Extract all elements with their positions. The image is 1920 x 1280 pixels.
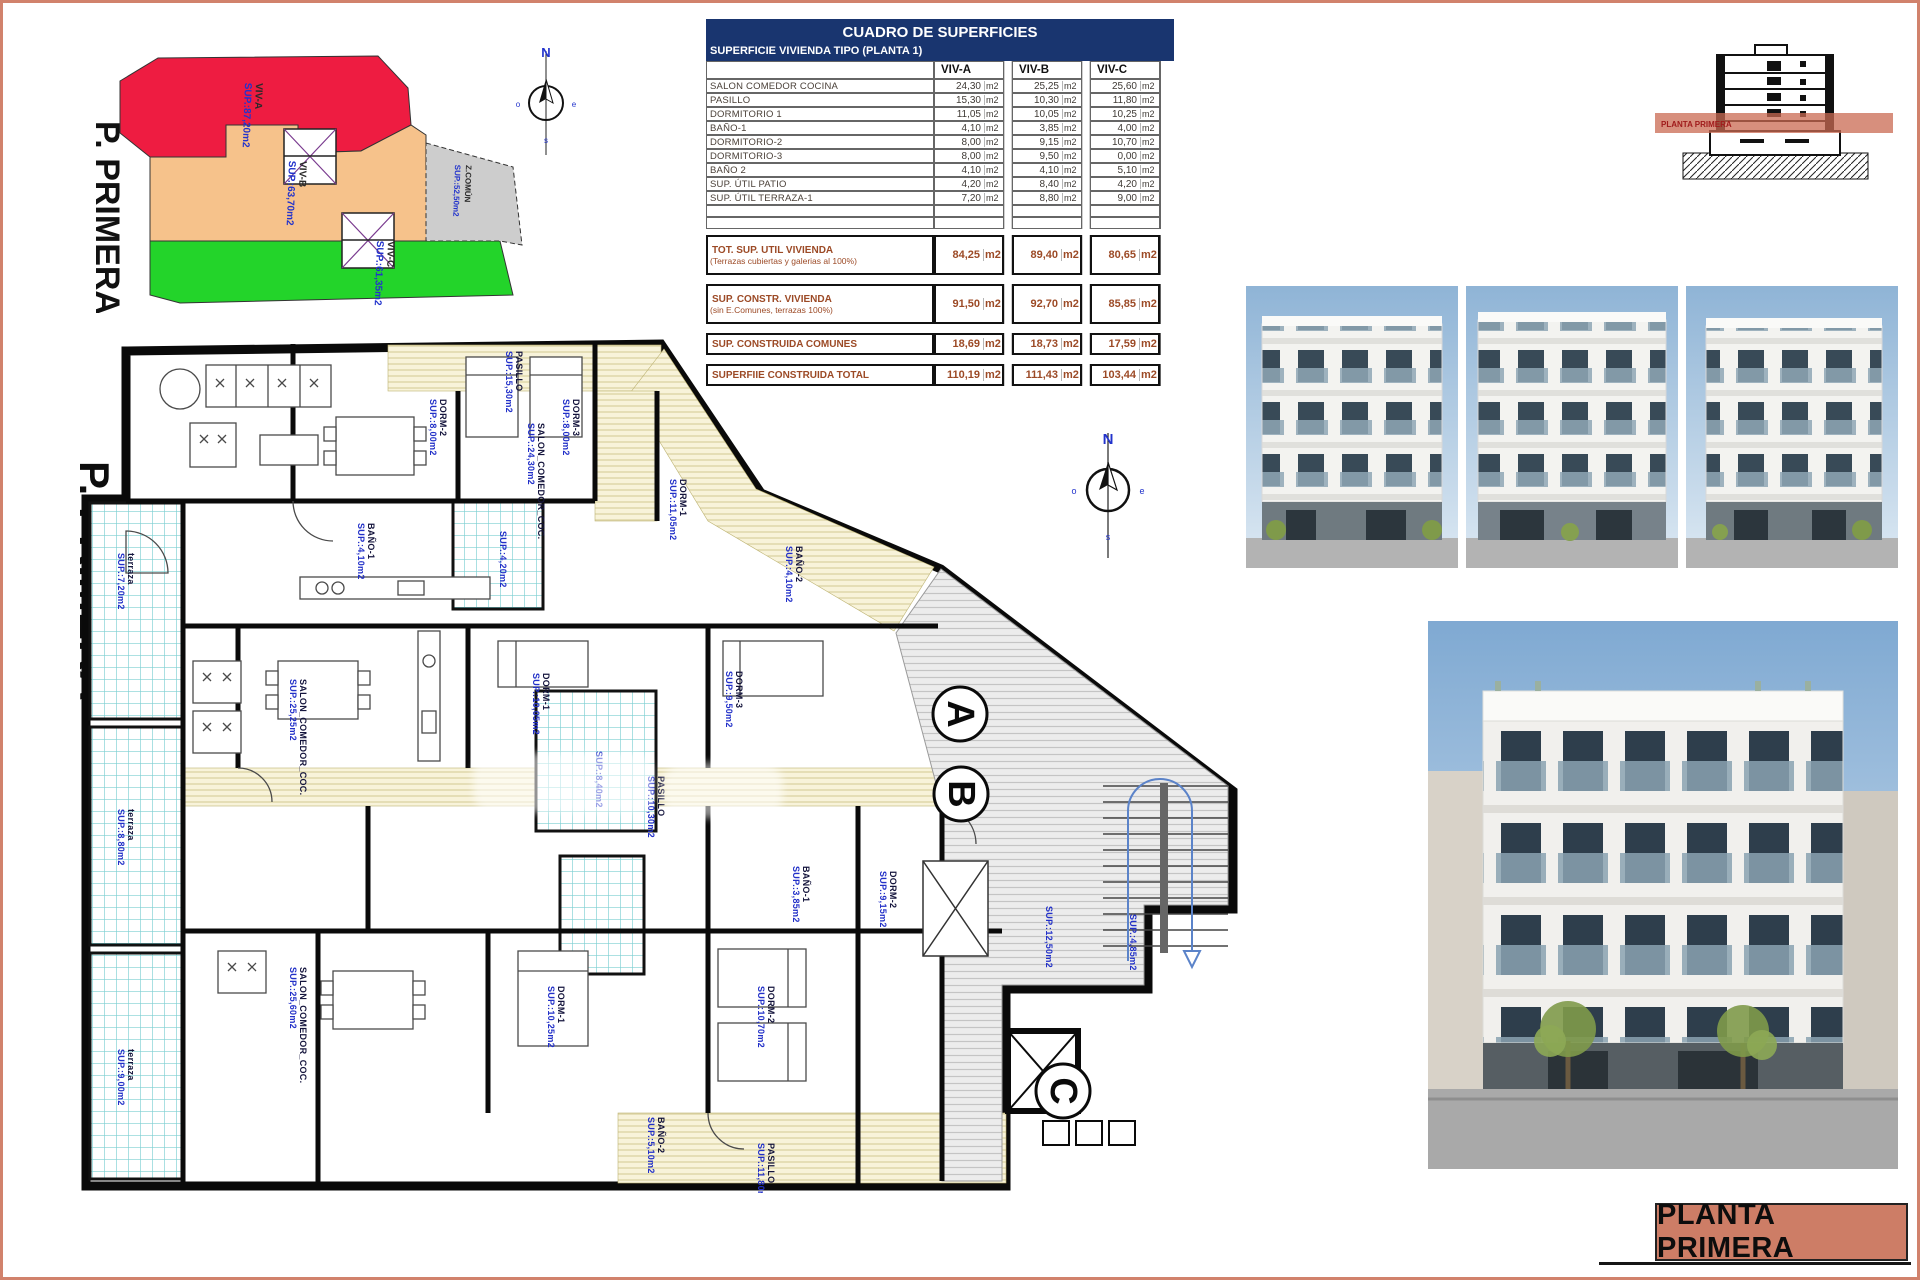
summary-row: TOT. SUP. UTIL VIVIENDA(Terrazas cubiert… — [706, 235, 1174, 275]
sheet-title: PLANTA PRIMERA — [1657, 1199, 1906, 1265]
zone-z-comun — [426, 143, 522, 245]
shower — [923, 861, 988, 956]
area-value-cell: 8,00m2 — [934, 149, 1004, 163]
area-value-cell: 89,40m2 — [1012, 235, 1082, 275]
facade-render-strip — [1246, 286, 1898, 568]
building-section-thumb: PLANTA PRIMERA — [1655, 31, 1893, 189]
row-label: SUP. ÚTIL PATIO — [706, 177, 934, 191]
area-value-cell: 9,15m2 — [1012, 135, 1082, 149]
row-label: DORMITORIO-2 — [706, 135, 934, 149]
area-value-cell: 9,50m2 — [1012, 149, 1082, 163]
area-value-cell: 92,70m2 — [1012, 284, 1082, 324]
zone-viv-c — [150, 241, 513, 303]
row-label: BAÑO 2 — [706, 163, 934, 177]
svg-text:e: e — [1139, 486, 1144, 496]
svg-text:N: N — [541, 45, 550, 60]
area-value-cell: 25,25m2 — [1012, 79, 1082, 93]
unit-marker-letter: C — [1042, 1077, 1084, 1104]
column-header: VIV-A — [934, 61, 1004, 79]
room-label: SUP.:4,85m2 — [1128, 914, 1138, 971]
areas-table-header: CUADRO DE SUPERFICIES SUPERFICIE VIVIEND… — [706, 19, 1174, 61]
area-value-cell: 8,00m2 — [934, 135, 1004, 149]
svg-text:o: o — [516, 100, 521, 109]
summary-label: SUP. CONSTR. VIVIENDA(sin E.Comunes, ter… — [706, 284, 934, 324]
areas-table-title: CUADRO DE SUPERFICIES — [706, 19, 1174, 44]
area-value-cell: 11,80m2 — [1090, 93, 1160, 107]
table-row: SALON COMEDOR COCINA24,30m225,25m225,60m… — [706, 79, 1174, 93]
row-label: DORMITORIO 1 — [706, 107, 934, 121]
svg-text:o: o — [1071, 486, 1076, 496]
area-value-cell: 9,00m2 — [1090, 191, 1160, 205]
area-value-cell: 10,05m2 — [1012, 107, 1082, 121]
area-value-cell: 8,80m2 — [1012, 191, 1082, 205]
table-row: PASILLO15,30m210,30m211,80m2 — [706, 93, 1174, 107]
row-label: PASILLO — [706, 93, 934, 107]
site-compass-icon: N o e s — [516, 45, 577, 155]
unit-marker-letter: A — [939, 700, 981, 727]
area-value-cell: 10,30m2 — [1012, 93, 1082, 107]
area-value-cell: 4,10m2 — [934, 163, 1004, 177]
empty-row — [706, 205, 1174, 217]
area-value-cell: 24,30m2 — [934, 79, 1004, 93]
site-plan-floor-label: P. PRIMERA — [88, 121, 126, 313]
table-row: SUP. ÚTIL TERRAZA-17,20m28,80m29,00m2 — [706, 191, 1174, 205]
area-value-cell: 15,30m2 — [934, 93, 1004, 107]
empty-row — [706, 217, 1174, 229]
room-label: SUP.:12,50m2 — [1044, 906, 1054, 968]
column-header: VIV-B — [1012, 61, 1082, 79]
area-value-cell: 84,25m2 — [934, 235, 1004, 275]
site-key-plan: P. PRIMERA VIV-ASUP.:87,20m2VIV-BSUP.:63… — [58, 43, 583, 313]
area-value-cell: 85,85m2 — [1090, 284, 1160, 324]
table-row: DORMITORIO-28,00m29,15m210,70m2 — [706, 135, 1174, 149]
row-label: DORMITORIO-3 — [706, 149, 934, 163]
table-row: BAÑO-14,10m23,85m24,00m2 — [706, 121, 1174, 135]
render-panel-3 — [1686, 286, 1898, 568]
room-label: SUP.:4,20m2 — [498, 531, 508, 588]
table-row: DORMITORIO-38,00m29,50m20,00m2 — [706, 149, 1174, 163]
summary-label: TOT. SUP. UTIL VIVIENDA(Terrazas cubiert… — [706, 235, 934, 275]
watermark — [473, 753, 653, 813]
plan-sheet: P. PRIMERA VIV-ASUP.:87,20m2VIV-BSUP.:63… — [0, 0, 1920, 1280]
title-block: PLANTA PRIMERA — [1655, 1203, 1908, 1261]
facade-render-large — [1428, 621, 1898, 1169]
area-value-cell: 25,60m2 — [1090, 79, 1160, 93]
svg-text:s: s — [544, 136, 548, 145]
render-panel-1 — [1246, 286, 1458, 568]
area-value-cell: 7,20m2 — [934, 191, 1004, 205]
row-label: SALON COMEDOR COCINA — [706, 79, 934, 93]
corner-cell — [706, 61, 934, 79]
area-value-cell: 91,50m2 — [934, 284, 1004, 324]
area-value-cell: 4,20m2 — [1090, 177, 1160, 191]
section-band-label: PLANTA PRIMERA — [1661, 120, 1732, 129]
column-header: VIV-C — [1090, 61, 1160, 79]
unit-marker-letter: B — [940, 780, 982, 807]
table-row: BAÑO 24,10m24,10m25,10m2 — [706, 163, 1174, 177]
row-label: SUP. ÚTIL TERRAZA-1 — [706, 191, 934, 205]
summary-row: SUP. CONSTR. VIVIENDA(sin E.Comunes, ter… — [706, 284, 1174, 324]
area-value-cell: 5,10m2 — [1090, 163, 1160, 177]
table-row: DORMITORIO 111,05m210,05m210,25m2 — [706, 107, 1174, 121]
render-panel-2 — [1466, 286, 1678, 568]
table-row: SUP. ÚTIL PATIO4,20m28,40m24,20m2 — [706, 177, 1174, 191]
area-value-cell: 4,20m2 — [934, 177, 1004, 191]
svg-text:e: e — [572, 100, 577, 109]
area-value-cell: 4,10m2 — [934, 121, 1004, 135]
svg-text:s: s — [1106, 532, 1111, 542]
svg-text:N: N — [1103, 431, 1114, 448]
area-value-cell: 4,00m2 — [1090, 121, 1160, 135]
table-column-header-row: VIV-AVIV-BVIV-C — [706, 61, 1174, 79]
area-value-cell: 11,05m2 — [934, 107, 1004, 121]
area-value-cell: 10,25m2 — [1090, 107, 1160, 121]
area-value-cell: 10,70m2 — [1090, 135, 1160, 149]
row-label: BAÑO-1 — [706, 121, 934, 135]
areas-table-subtitle: SUPERFICIE VIVIENDA TIPO (PLANTA 1) — [706, 44, 1174, 61]
compass-icon: N o e s — [1058, 428, 1158, 563]
area-value-cell: 4,10m2 — [1012, 163, 1082, 177]
area-value-cell: 0,00m2 — [1090, 149, 1160, 163]
area-value-cell: 3,85m2 — [1012, 121, 1082, 135]
area-value-cell: 8,40m2 — [1012, 177, 1082, 191]
area-value-cell: 80,65m2 — [1090, 235, 1160, 275]
watermark — [663, 763, 783, 818]
